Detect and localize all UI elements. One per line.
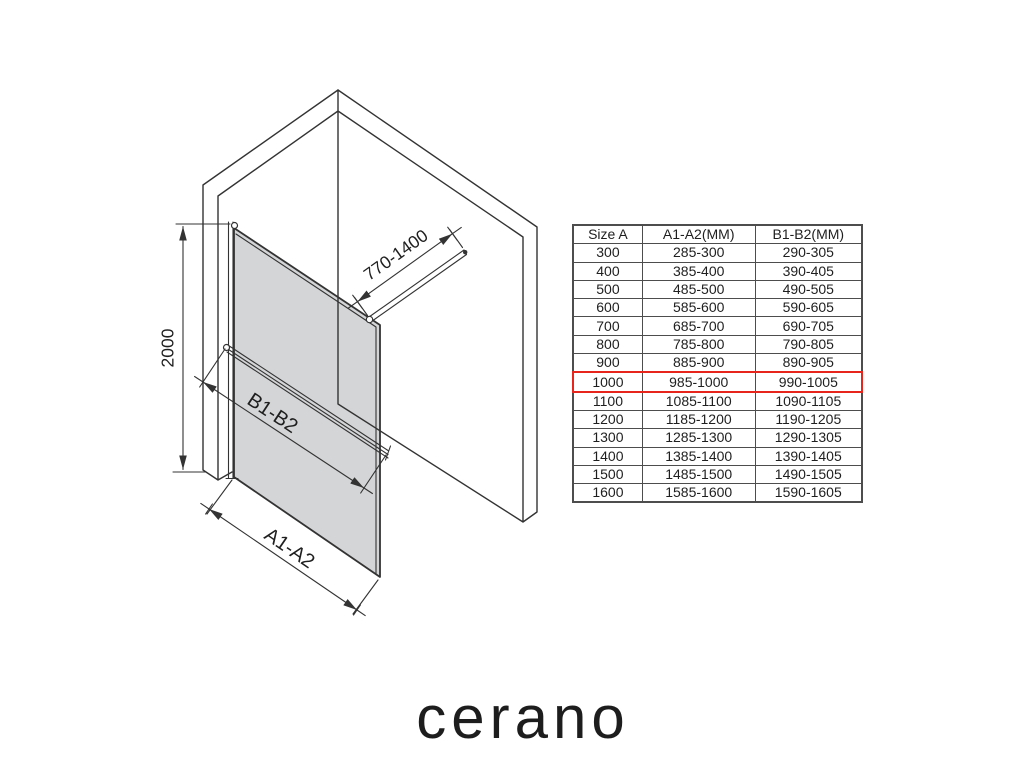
table-cell: 800 (573, 335, 642, 353)
table-row: 900885-900890-905 (573, 354, 862, 373)
table-cell: 985-1000 (642, 372, 755, 391)
col-header-b1-b2: B1-B2(MM) (755, 225, 862, 244)
table-row: 1000985-1000990-1005 (573, 372, 862, 391)
table-cell: 890-905 (755, 354, 862, 373)
table-cell: 1285-1300 (642, 429, 755, 447)
brand-logo: cerano (416, 686, 629, 750)
table-row: 13001285-13001290-1305 (573, 429, 862, 447)
table-row: 12001185-12001190-1205 (573, 410, 862, 428)
table-row: 15001485-15001490-1505 (573, 465, 862, 483)
table-cell: 1400 (573, 447, 642, 465)
table-cell: 885-900 (642, 354, 755, 373)
table-cell: 300 (573, 244, 642, 262)
table-cell: 290-305 (755, 244, 862, 262)
table-row: 400385-400390-405 (573, 262, 862, 280)
table-header-row: Size A A1-A2(MM) B1-B2(MM) (573, 225, 862, 244)
table-cell: 1100 (573, 392, 642, 411)
height-dimension-label: 2000 (158, 328, 178, 367)
support-bar-dimension-label: 770-1400 (360, 225, 432, 284)
table-cell: 585-600 (642, 299, 755, 317)
table-row: 16001585-16001590-1605 (573, 484, 862, 503)
table-cell: 1600 (573, 484, 642, 503)
table-cell: 500 (573, 280, 642, 298)
table-row: 11001085-11001090-1105 (573, 392, 862, 411)
table-cell: 1385-1400 (642, 447, 755, 465)
table-cell: 1290-1305 (755, 429, 862, 447)
table-cell: 1090-1105 (755, 392, 862, 411)
size-table: Size A A1-A2(MM) B1-B2(MM) 300285-300290… (572, 224, 863, 503)
support-bar-wall-connector (463, 250, 467, 254)
dimension-770-1400: 770-1400 (349, 225, 463, 315)
table-cell: 990-1005 (755, 372, 862, 391)
table-cell: 1200 (573, 410, 642, 428)
table-cell: 1190-1205 (755, 410, 862, 428)
dimension-2000: 2000 (158, 224, 230, 472)
table-cell: 900 (573, 354, 642, 373)
table-cell: 785-800 (642, 335, 755, 353)
table-cell: 1590-1605 (755, 484, 862, 503)
table-row: 14001385-14001390-1405 (573, 447, 862, 465)
table-row: 700685-700690-705 (573, 317, 862, 335)
table-cell: 1000 (573, 372, 642, 391)
technical-drawing: 2000 770-1400 B1-B2 A1-A2 (0, 0, 1024, 768)
table-cell: 385-400 (642, 262, 755, 280)
table-row: 300285-300290-305 (573, 244, 862, 262)
opening-width-dimension-label: A1-A2 (260, 524, 318, 574)
table-cell: 700 (573, 317, 642, 335)
table-cell: 1085-1100 (642, 392, 755, 411)
size-table-body: 300285-300290-305400385-400390-405500485… (573, 244, 862, 503)
table-cell: 1500 (573, 465, 642, 483)
table-cell: 390-405 (755, 262, 862, 280)
table-cell: 600 (573, 299, 642, 317)
table-cell: 400 (573, 262, 642, 280)
table-cell: 1585-1600 (642, 484, 755, 503)
table-cell: 285-300 (642, 244, 755, 262)
profile-top-cap (232, 223, 238, 229)
table-cell: 1185-1200 (642, 410, 755, 428)
table-cell: 1300 (573, 429, 642, 447)
col-header-size: Size A (573, 225, 642, 244)
table-row: 800785-800790-805 (573, 335, 862, 353)
support-bar-glass-connector (366, 316, 372, 322)
size-table-container: Size A A1-A2(MM) B1-B2(MM) 300285-300290… (572, 224, 863, 503)
table-cell: 790-805 (755, 335, 862, 353)
table-cell: 685-700 (642, 317, 755, 335)
table-row: 600585-600590-605 (573, 299, 862, 317)
product-diagram-page: 2000 770-1400 B1-B2 A1-A2 Size A (0, 0, 1024, 768)
table-cell: 590-605 (755, 299, 862, 317)
table-cell: 1485-1500 (642, 465, 755, 483)
table-cell: 1490-1505 (755, 465, 862, 483)
extension-lines (173, 224, 230, 472)
table-cell: 490-505 (755, 280, 862, 298)
table-row: 500485-500490-505 (573, 280, 862, 298)
table-cell: 1390-1405 (755, 447, 862, 465)
col-header-a1-a2: A1-A2(MM) (642, 225, 755, 244)
table-cell: 690-705 (755, 317, 862, 335)
table-cell: 485-500 (642, 280, 755, 298)
